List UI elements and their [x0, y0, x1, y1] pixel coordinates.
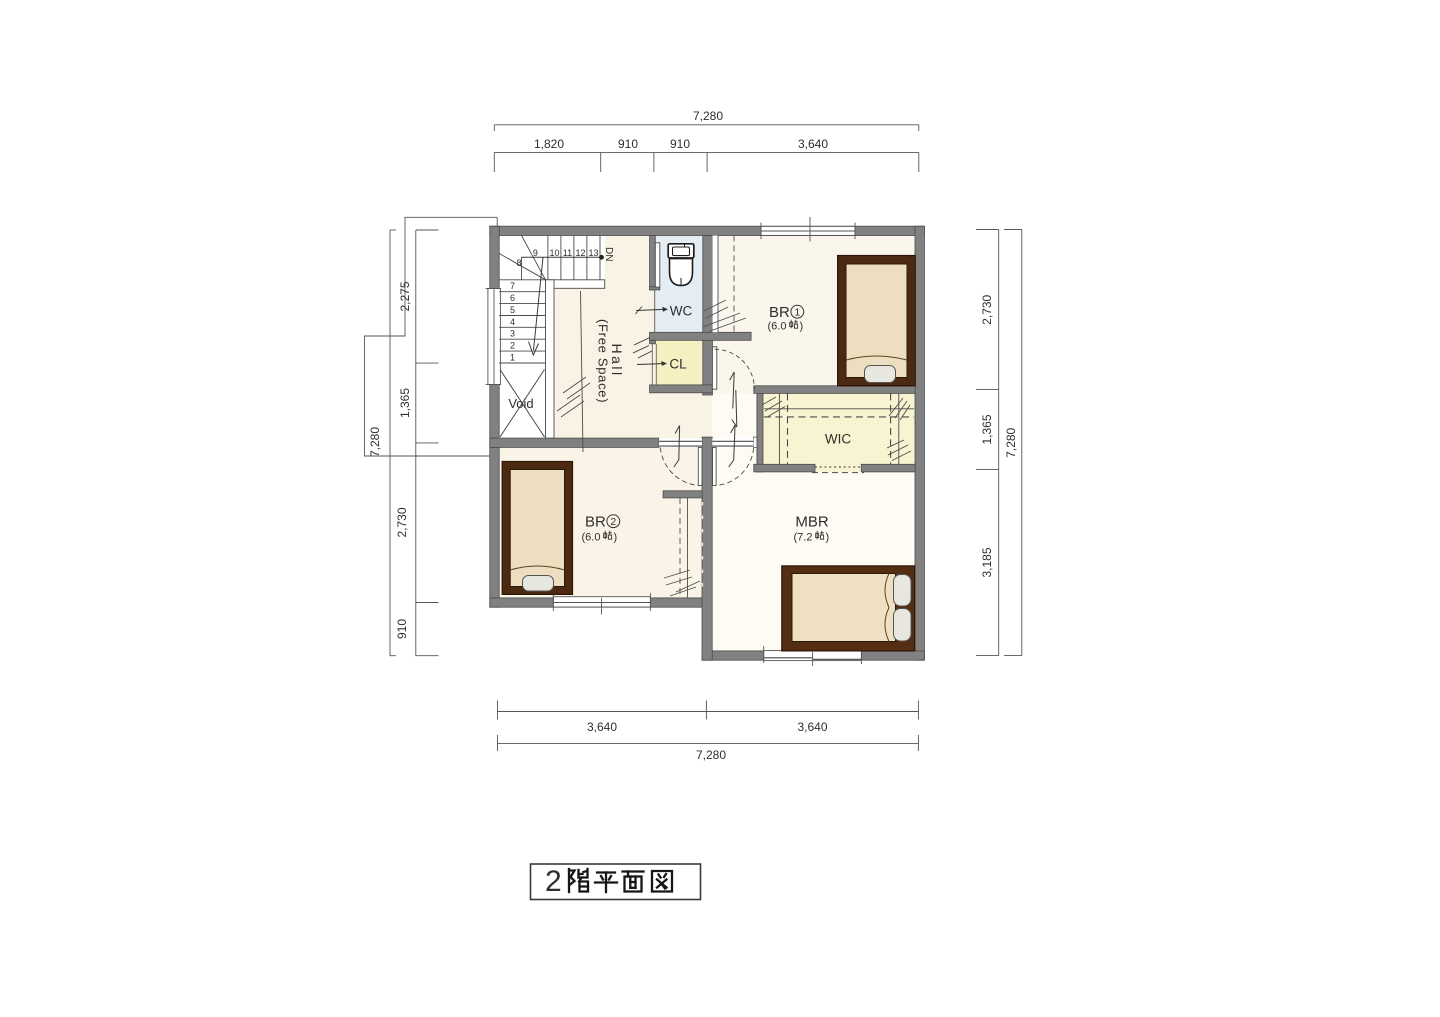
svg-text:DN: DN: [603, 247, 614, 261]
svg-text:WC: WC: [670, 304, 693, 319]
svg-text:10: 10: [549, 248, 559, 258]
svg-text:13: 13: [588, 248, 598, 258]
svg-text:3,185: 3,185: [980, 547, 994, 577]
svg-text:3,640: 3,640: [797, 720, 827, 734]
svg-text:1,365: 1,365: [398, 388, 412, 418]
svg-text:7: 7: [510, 281, 515, 291]
svg-text:6: 6: [510, 293, 515, 303]
svg-text:2: 2: [610, 516, 616, 528]
svg-text:Void: Void: [508, 396, 533, 411]
svg-text:1,365: 1,365: [980, 414, 994, 444]
svg-text:): ): [826, 532, 830, 544]
svg-text:BR: BR: [585, 514, 606, 531]
svg-text:): ): [800, 321, 804, 333]
svg-text:3: 3: [510, 329, 515, 339]
svg-text:2: 2: [545, 865, 562, 898]
svg-text:7,280: 7,280: [368, 427, 382, 457]
svg-text:CL: CL: [669, 357, 687, 372]
svg-text:BR: BR: [769, 304, 790, 321]
svg-text:910: 910: [395, 619, 409, 639]
svg-text:2: 2: [510, 341, 515, 351]
svg-text:2,730: 2,730: [395, 507, 409, 537]
svg-text:(6.0: (6.0: [768, 321, 787, 333]
svg-text:3,640: 3,640: [587, 720, 617, 734]
svg-text:3,640: 3,640: [798, 137, 828, 151]
svg-text:910: 910: [618, 137, 638, 151]
svg-text:7,280: 7,280: [696, 748, 726, 762]
svg-text:9: 9: [533, 248, 538, 258]
svg-text:2,730: 2,730: [980, 294, 994, 324]
svg-text:(7.2: (7.2: [794, 532, 813, 544]
svg-text:11: 11: [563, 248, 572, 258]
svg-text:1: 1: [794, 306, 800, 318]
svg-text:(Free Space): (Free Space): [596, 319, 611, 403]
svg-text:910: 910: [670, 137, 690, 151]
svg-text:WIC: WIC: [825, 432, 851, 447]
svg-text:8: 8: [516, 258, 521, 268]
svg-text:5: 5: [510, 305, 515, 315]
svg-text:4: 4: [510, 317, 515, 327]
svg-text:1: 1: [510, 353, 515, 363]
svg-text:7,280: 7,280: [693, 109, 723, 123]
svg-text:12: 12: [575, 248, 585, 258]
svg-text:): ): [614, 532, 618, 544]
svg-text:(6.0: (6.0: [582, 532, 601, 544]
svg-text:2,275: 2,275: [398, 281, 412, 311]
svg-text:MBR: MBR: [795, 514, 829, 531]
svg-text:7,280: 7,280: [1004, 427, 1018, 457]
svg-text:1,820: 1,820: [534, 137, 564, 151]
